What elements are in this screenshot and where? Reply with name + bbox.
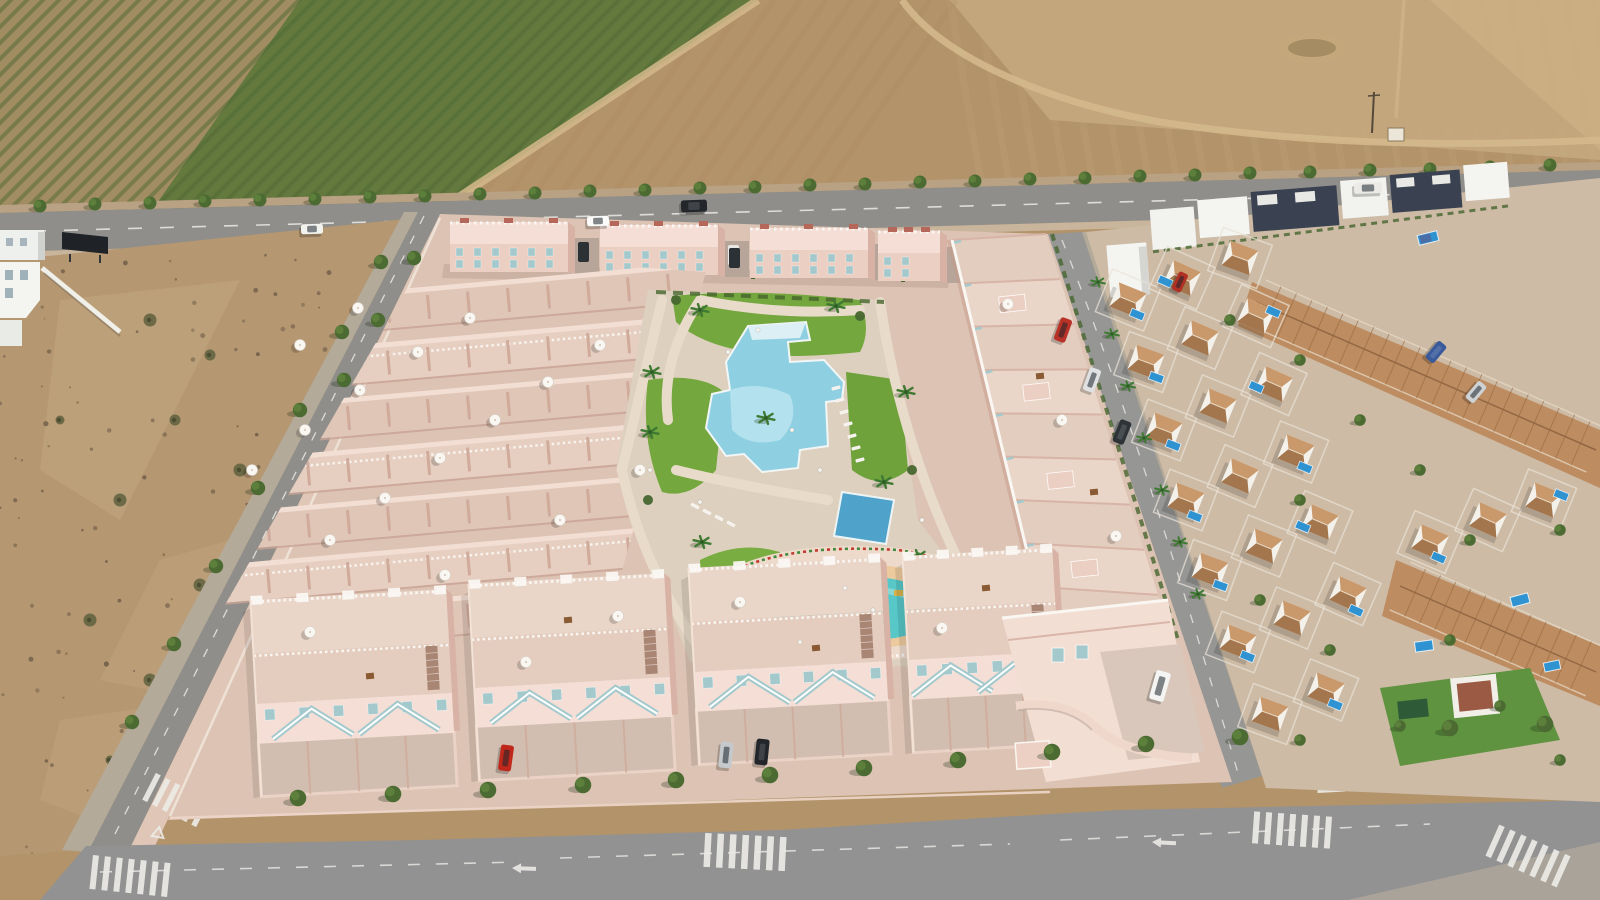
window: [803, 671, 814, 683]
speckle: [25, 846, 28, 849]
tree-highlight: [254, 195, 261, 202]
speckle: [120, 729, 124, 733]
speckle: [162, 553, 165, 556]
tree-highlight: [1304, 167, 1311, 174]
tree-highlight: [1045, 745, 1054, 754]
red-roof-accent: [760, 224, 769, 229]
speckle: [274, 292, 278, 296]
person: [871, 608, 875, 612]
window: [810, 266, 817, 274]
umbrella-pole: [359, 389, 361, 391]
palm-crown: [834, 304, 838, 308]
palm-crown: [1127, 385, 1130, 388]
large-villa-roof: [1457, 680, 1494, 711]
tree-highlight: [294, 404, 302, 412]
window: [660, 251, 667, 259]
wing-division: [983, 369, 1088, 370]
balustrade-post: [560, 574, 572, 584]
window: [828, 266, 835, 274]
umbrella-pole: [304, 429, 306, 431]
red-roof-accent: [549, 218, 558, 223]
window: [492, 260, 499, 268]
speckle: [151, 419, 155, 423]
tree-highlight: [859, 179, 866, 186]
window: [967, 662, 978, 674]
tree-highlight: [89, 199, 96, 206]
tree-highlight: [364, 192, 371, 199]
tree-highlight: [1355, 415, 1361, 421]
speckle: [136, 330, 139, 333]
speckle: [41, 490, 44, 493]
red-roof-accent: [504, 218, 513, 223]
speckle: [87, 789, 89, 791]
speckle: [318, 307, 320, 309]
tree-highlight: [1538, 717, 1547, 726]
speckle: [162, 432, 166, 436]
speckle: [67, 612, 71, 616]
bush-core: [57, 418, 61, 422]
person: [920, 518, 924, 522]
tree-highlight: [210, 560, 218, 568]
umbrella-pole: [617, 615, 619, 617]
umbrella-pole: [494, 419, 496, 421]
umbrella-pole: [941, 627, 943, 629]
speckle: [65, 652, 68, 655]
roof-terrace: [750, 228, 868, 250]
speckle: [81, 529, 84, 532]
tree-highlight: [252, 482, 260, 490]
speckle: [15, 457, 17, 459]
tree-highlight: [584, 186, 591, 193]
tree-highlight: [372, 314, 380, 322]
window: [474, 260, 481, 268]
speckle: [29, 657, 34, 662]
tree-highlight: [408, 252, 416, 260]
car: [1352, 182, 1382, 197]
tree-highlight: [1424, 164, 1431, 171]
red-roof-accent: [699, 221, 708, 226]
tree-highlight: [1555, 525, 1561, 531]
aerial-scene: [0, 0, 1600, 900]
speckle: [104, 661, 109, 666]
window: [333, 705, 344, 717]
tree-highlight: [1544, 160, 1551, 167]
umbrella-pole: [384, 497, 386, 499]
speckle: [169, 260, 172, 263]
balustrade-post: [778, 558, 790, 568]
red-roof-accent: [849, 224, 858, 229]
umbrella-pole: [299, 344, 301, 346]
dark-modern-block: [1390, 170, 1463, 213]
window: [846, 266, 853, 274]
window: [436, 699, 447, 711]
window: [870, 667, 881, 679]
window: [265, 709, 276, 721]
window: [546, 248, 553, 256]
tree-highlight: [1295, 495, 1301, 501]
speckle: [13, 544, 17, 548]
garden-shrub: [855, 311, 865, 321]
roof-terrace: [878, 231, 940, 253]
window: [456, 260, 463, 268]
car-cabin: [688, 202, 700, 210]
window: [792, 254, 799, 262]
palm-crown: [882, 480, 886, 484]
balustrade-post: [388, 588, 400, 598]
wing-terrace: [952, 234, 1060, 283]
window: [756, 254, 763, 262]
red-roof-accent: [888, 227, 897, 232]
aerial-photo: [0, 0, 1600, 900]
wing-terrace: [973, 324, 1088, 370]
window: [884, 269, 891, 277]
speckle: [253, 288, 258, 293]
window: [510, 248, 517, 256]
speckle: [50, 763, 54, 767]
window: [551, 689, 562, 701]
umbrella-pole: [251, 469, 253, 471]
speckle: [13, 498, 17, 502]
palm-crown: [1197, 593, 1200, 596]
balustrade-post: [434, 585, 446, 595]
window: [624, 251, 631, 259]
parked-car: [729, 248, 740, 268]
palm-crown: [764, 416, 768, 420]
speckle: [200, 333, 205, 338]
bush-core: [207, 353, 211, 357]
window: [770, 673, 781, 685]
balustrade-post: [606, 572, 618, 582]
white-house: [1197, 196, 1250, 238]
garden-shrub: [671, 295, 681, 305]
block-side-shade: [718, 225, 725, 277]
car-cabin: [307, 226, 317, 233]
pool: [1414, 640, 1433, 652]
bush-core: [147, 678, 151, 682]
tree-highlight: [144, 198, 151, 205]
balustrade-post: [971, 547, 983, 557]
umbrella-pole: [357, 307, 359, 309]
palm-crown: [1097, 281, 1100, 284]
window: [810, 254, 817, 262]
utility-pole-crossarm: [1368, 95, 1380, 96]
block-side-shade: [940, 231, 947, 283]
umbrella-pole: [599, 344, 601, 346]
tree-highlight: [1225, 315, 1231, 321]
balustrade-post: [342, 590, 354, 600]
roof-structure: [1071, 559, 1099, 578]
speckle: [175, 278, 177, 280]
speckle: [21, 459, 23, 461]
speckle: [327, 270, 332, 275]
tree-highlight: [857, 761, 866, 770]
person: [756, 328, 760, 332]
window: [828, 254, 835, 262]
window: [642, 251, 649, 259]
patio-table: [1036, 373, 1044, 380]
speckle: [317, 291, 321, 295]
speckle: [93, 526, 97, 530]
tree-highlight: [34, 201, 41, 208]
tree-highlight: [1233, 730, 1242, 739]
person: [843, 586, 847, 590]
stairs: [425, 646, 439, 691]
wing-terrace: [1015, 500, 1144, 550]
tree-highlight: [126, 716, 134, 724]
bush-core: [197, 583, 201, 587]
tree-highlight: [1445, 635, 1451, 641]
tree-highlight: [338, 374, 346, 382]
speckle: [56, 650, 61, 655]
balustrade-post: [1040, 544, 1052, 554]
tree-highlight: [1134, 171, 1141, 178]
tree-highlight: [763, 768, 772, 777]
speckle: [118, 599, 122, 603]
red-roof-accent: [610, 221, 619, 226]
window: [846, 254, 853, 262]
tree-highlight: [1255, 595, 1261, 601]
parked-car: [578, 242, 589, 262]
umbrella-pole: [639, 469, 641, 471]
tree-highlight: [749, 182, 756, 189]
speckle: [171, 598, 173, 600]
umbrella-pole: [1115, 535, 1117, 537]
speckle: [255, 433, 259, 437]
car-cabin: [1362, 184, 1375, 191]
corner-window: [1052, 648, 1064, 662]
patio-table: [366, 673, 374, 680]
bush-core: [237, 468, 241, 472]
tree-highlight: [639, 185, 646, 192]
window: [703, 677, 714, 689]
tree-highlight: [168, 638, 176, 646]
lap-pool: [834, 492, 894, 544]
speckle: [44, 318, 46, 320]
speckle: [18, 517, 20, 519]
person: [726, 350, 730, 354]
tree-highlight: [386, 787, 395, 796]
window: [483, 693, 494, 705]
palm-crown: [1143, 437, 1146, 440]
mid-terrace: [691, 611, 885, 672]
balustrade-post: [688, 563, 700, 573]
red-roof-accent: [904, 227, 913, 232]
window: [792, 266, 799, 274]
white-house: [1463, 162, 1510, 201]
umbrella-pole: [1061, 419, 1063, 421]
tree-highlight: [1495, 701, 1501, 707]
umbrella-pole: [439, 457, 441, 459]
speckle: [323, 347, 328, 352]
tree-highlight: [1189, 170, 1196, 177]
balustrade-post: [652, 569, 664, 579]
tree-highlight: [694, 183, 701, 190]
palm-crown: [648, 430, 652, 434]
tree-highlight: [199, 196, 206, 203]
rock-pile-core: [1288, 39, 1336, 57]
speckle: [291, 324, 296, 329]
tree-highlight: [1024, 174, 1031, 181]
red-roof-accent: [460, 218, 469, 223]
speckle: [47, 349, 51, 353]
red-roof-accent: [921, 227, 930, 232]
speckle: [294, 259, 296, 261]
field-hut: [1388, 128, 1404, 141]
stairs: [859, 614, 873, 659]
speckle: [264, 254, 267, 257]
tree-highlight: [804, 180, 811, 187]
tree-highlight: [1364, 165, 1371, 172]
speckle: [90, 447, 93, 450]
speckle: [35, 688, 39, 692]
speckle: [3, 355, 6, 358]
window: [774, 266, 781, 274]
patio-table: [812, 645, 820, 652]
speckle: [375, 820, 377, 822]
window: [510, 260, 517, 268]
speckle: [30, 604, 34, 608]
stairs: [643, 630, 657, 675]
bush-core: [87, 618, 91, 622]
balustrade-post: [733, 561, 745, 571]
red-roof-accent: [654, 221, 663, 226]
window: [368, 703, 379, 715]
wing-division: [994, 413, 1102, 414]
roof-structure: [1047, 471, 1075, 490]
window: [654, 683, 665, 695]
tree-highlight: [375, 256, 383, 264]
speckle: [45, 759, 48, 762]
window: [474, 248, 481, 256]
balustrade-post: [296, 593, 308, 603]
speckle: [47, 445, 49, 447]
speckle: [211, 489, 215, 493]
speckle: [165, 603, 170, 608]
speckle: [69, 386, 71, 388]
block-side-shade: [868, 228, 875, 280]
tree-highlight: [1325, 645, 1331, 651]
person: [698, 500, 702, 504]
patio-table: [982, 585, 990, 592]
window: [546, 260, 553, 268]
window: [756, 266, 763, 274]
garden-shrub: [643, 495, 653, 505]
tree-highlight: [529, 188, 536, 195]
speckle: [142, 475, 146, 479]
speckle: [62, 697, 64, 699]
speckle: [191, 357, 196, 362]
tree-highlight: [1244, 168, 1251, 175]
car: [679, 200, 708, 216]
balustrade-post: [902, 551, 914, 561]
speckle: [105, 560, 108, 563]
person: [818, 468, 822, 472]
speckle: [236, 425, 238, 427]
roof-terrace: [450, 222, 568, 244]
balustrade-post: [514, 577, 526, 587]
umbrella-pole: [417, 351, 419, 353]
person: [798, 640, 802, 644]
window: [696, 251, 703, 259]
palm-crown: [700, 540, 704, 544]
palm-crown: [698, 308, 702, 312]
patio-table: [1090, 489, 1098, 496]
window: [902, 257, 909, 265]
speckle: [133, 670, 135, 672]
balustrade-post: [250, 595, 262, 605]
tree-highlight: [336, 326, 344, 334]
umbrella-pole: [547, 381, 549, 383]
balustrade-post: [468, 579, 480, 589]
car-cabin: [593, 218, 603, 225]
window: [884, 257, 891, 265]
window: [528, 260, 535, 268]
tree-highlight: [1465, 535, 1471, 541]
speckle: [76, 401, 79, 404]
tree-highlight: [1295, 735, 1301, 741]
tree-highlight: [1079, 173, 1086, 180]
window: [528, 248, 535, 256]
speckle: [234, 348, 237, 351]
roof-structure: [1023, 382, 1051, 401]
speckle: [43, 421, 48, 426]
tree-highlight: [969, 176, 976, 183]
palm-crown: [1179, 541, 1182, 544]
speckle: [191, 329, 194, 332]
person: [648, 468, 652, 472]
umbrella-pole: [444, 574, 446, 576]
window: [696, 263, 703, 271]
window: [606, 251, 613, 259]
speckle: [123, 261, 128, 266]
tree-highlight: [1555, 755, 1561, 761]
car: [585, 216, 609, 230]
white-house: [1150, 206, 1197, 249]
townhouse-block: [680, 553, 897, 766]
red-roof-accent: [804, 224, 813, 229]
balustrade-post: [937, 549, 949, 559]
speckle: [41, 385, 43, 387]
tree-highlight: [1443, 721, 1452, 730]
umbrella-pole: [329, 539, 331, 541]
speckle: [301, 303, 305, 307]
umbrella-pole: [525, 661, 527, 663]
window: [678, 251, 685, 259]
tree-highlight: [309, 194, 316, 201]
roof-terrace: [600, 225, 718, 247]
dark-modern-block: [1251, 185, 1340, 232]
car: [299, 224, 323, 238]
bush-core: [117, 498, 121, 502]
tree-highlight: [1295, 355, 1301, 361]
window: [902, 269, 909, 277]
tree-highlight: [481, 783, 490, 792]
window: [586, 687, 597, 699]
patio-table: [564, 617, 572, 624]
tree-highlight: [419, 191, 426, 198]
balustrade-post: [868, 553, 880, 563]
tree-highlight: [474, 189, 481, 196]
speckle: [107, 428, 112, 433]
bush-core: [147, 318, 151, 322]
window: [917, 665, 928, 677]
umbrella-pole: [1007, 303, 1009, 305]
palm-crown: [1111, 333, 1114, 336]
speckle: [1, 693, 4, 696]
speckle: [309, 838, 312, 841]
umbrella-pole: [739, 601, 741, 603]
pool-water: [1414, 640, 1433, 652]
